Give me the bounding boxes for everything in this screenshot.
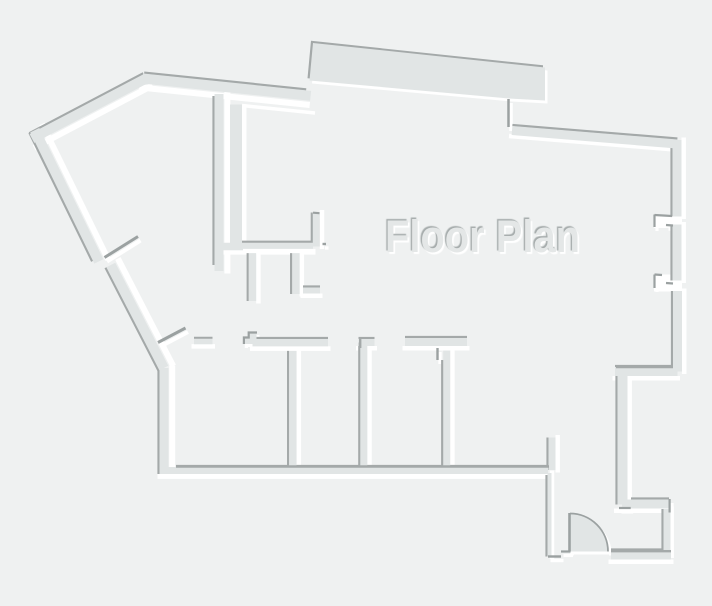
svg-text:Floor Plan: Floor Plan — [385, 211, 580, 262]
